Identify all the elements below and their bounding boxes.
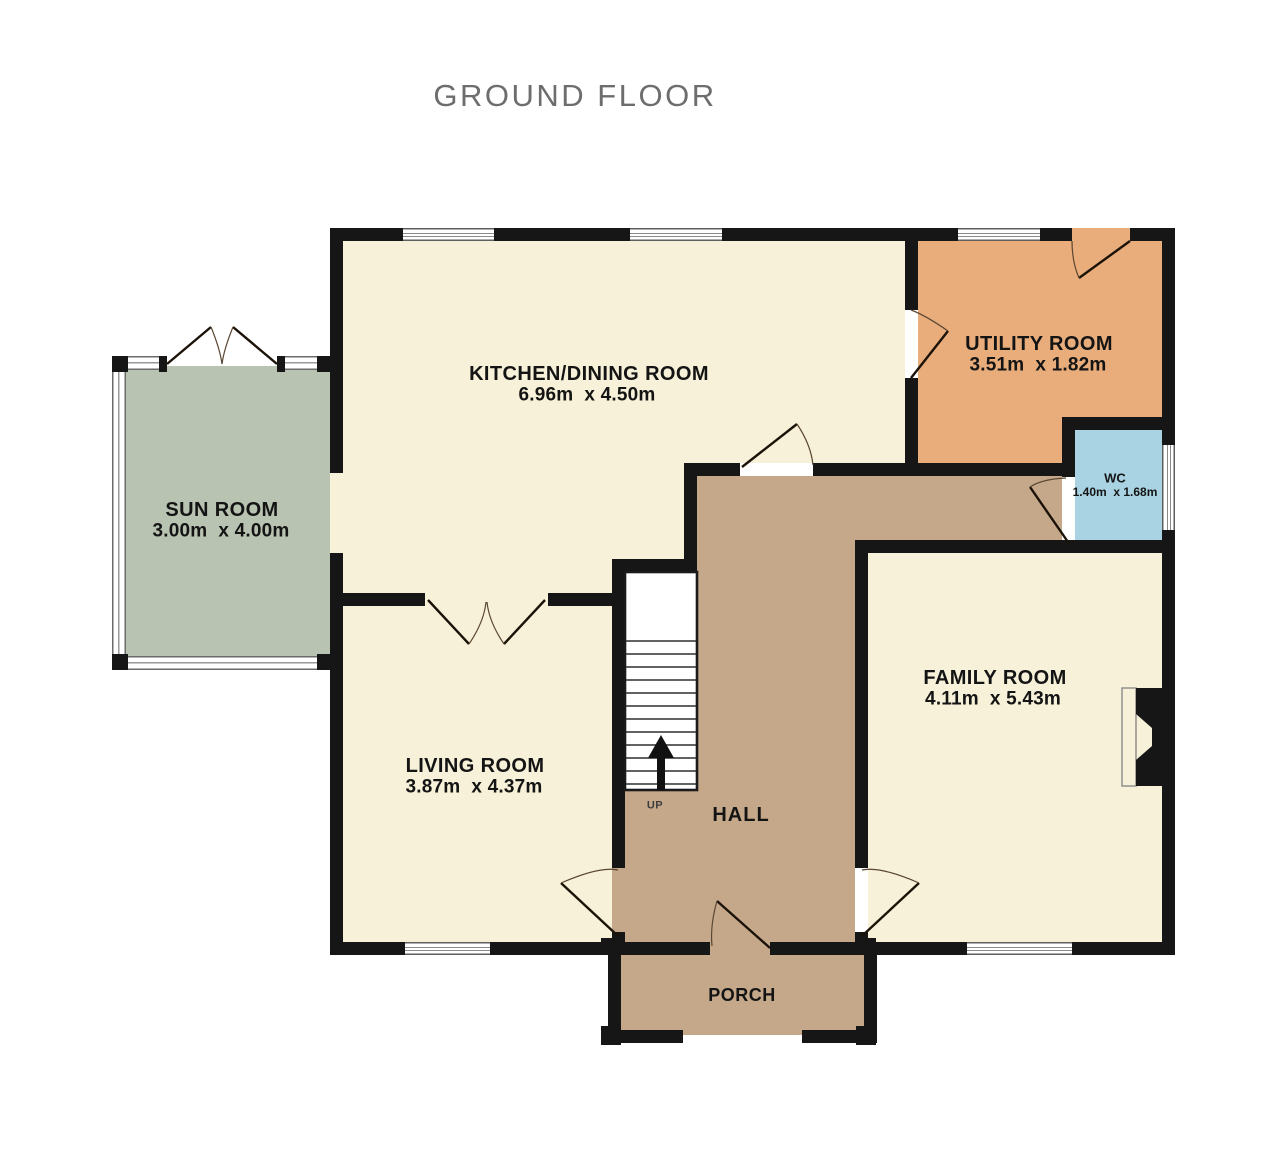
wall-segment: [494, 228, 630, 241]
kitchen-dims: 6.96m x 4.50m: [519, 386, 656, 405]
sun-room-opening: [330, 473, 343, 553]
wall-segment: [1162, 530, 1175, 942]
stairs-up-label: UP: [647, 801, 663, 812]
wall-segment: [905, 378, 918, 476]
utility-label: UTILITY ROOM: [965, 334, 1113, 354]
wall-segment: [905, 241, 918, 310]
living-dims: 3.87m x 4.37m: [406, 778, 543, 797]
wall-segment: [1062, 417, 1175, 430]
porch-corner-post: [856, 938, 876, 955]
wall-segment: [330, 942, 405, 955]
utility-door-gap: [1072, 228, 1130, 241]
sunroom-label: SUN ROOM: [165, 500, 278, 520]
kitchen-label: KITCHEN/DINING ROOM: [469, 364, 709, 384]
wc-dims: 1.40m x 1.68m: [1073, 486, 1158, 498]
floor-plan: GROUND FLOOR KITCHEN/DINING ROOM 6.96m x…: [0, 0, 1280, 1150]
sunroom-window-wall: [112, 356, 126, 670]
hall-floor: [697, 476, 855, 942]
wc-label: WC: [1104, 472, 1126, 485]
door-hinge-post: [159, 356, 167, 372]
wall-segment: [697, 463, 740, 476]
wall-segment: [855, 540, 1175, 553]
page-title: GROUND FLOOR: [433, 78, 716, 114]
wall-segment: [1040, 228, 1072, 241]
family-room-floor: [868, 553, 1162, 942]
wall-segment: [684, 463, 697, 572]
wall-segment: [1130, 228, 1175, 241]
wall-segment: [1062, 430, 1075, 477]
window: [967, 942, 1072, 955]
door-leaf: [233, 327, 277, 364]
window: [958, 228, 1040, 241]
door-arc: [222, 327, 233, 364]
wall-segment: [548, 593, 612, 606]
wall-segment: [1072, 942, 1175, 955]
utility-room-floor: [918, 241, 1162, 417]
utility-dims: 3.51m x 1.82m: [970, 356, 1107, 375]
wall-segment: [612, 559, 697, 572]
sunroom-dims: 3.00m x 4.00m: [153, 522, 290, 541]
wall-segment: [612, 572, 625, 868]
living-label: LIVING ROOM: [406, 756, 545, 776]
window: [1162, 445, 1175, 530]
sunroom-corner-post: [112, 356, 128, 372]
window: [630, 228, 722, 241]
wall-segment: [722, 228, 958, 241]
door-arc: [211, 327, 222, 364]
wall-segment: [490, 942, 710, 955]
porch-label: PORCH: [708, 986, 776, 1004]
sunroom-corner-post: [317, 654, 333, 670]
wall-segment: [855, 553, 868, 868]
window: [403, 228, 494, 241]
door-leaf: [167, 327, 211, 364]
wall-segment: [813, 463, 1062, 476]
family-dims: 4.11m x 5.43m: [925, 690, 1061, 709]
wall-segment: [330, 228, 403, 241]
sunroom-window-wall: [112, 656, 333, 670]
front-door-gap: [710, 942, 770, 955]
window: [405, 942, 490, 955]
hall-label: HALL: [712, 805, 769, 825]
door-hinge-post: [277, 356, 285, 372]
hall-floor: [855, 476, 1062, 540]
sunroom-corner-post: [317, 356, 333, 372]
utility-room-floor: [918, 417, 1062, 463]
wall-segment: [1162, 241, 1175, 445]
porch-corner-post: [601, 938, 621, 955]
wall-segment: [330, 553, 343, 942]
kitchen-floor: [343, 241, 905, 463]
sunroom-corner-post: [112, 654, 128, 670]
family-label: FAMILY ROOM: [923, 668, 1066, 688]
porch-corner-post: [601, 1026, 621, 1045]
wall-segment: [343, 593, 425, 606]
porch-corner-post: [856, 1026, 876, 1045]
